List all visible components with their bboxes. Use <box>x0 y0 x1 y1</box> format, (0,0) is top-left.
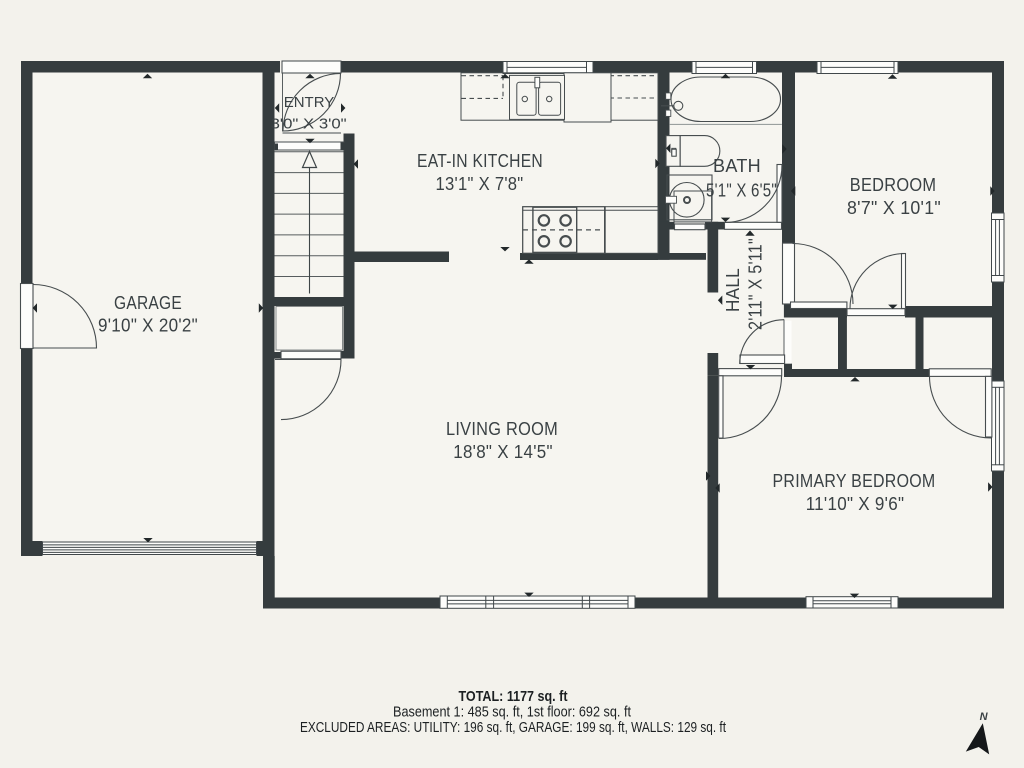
svg-text:GARAGE: GARAGE <box>114 293 182 313</box>
svg-text:EAT-IN KITCHEN: EAT-IN KITCHEN <box>417 151 543 171</box>
svg-text:BEDROOM: BEDROOM <box>850 175 937 195</box>
svg-text:TOTAL: 1177 sq. ft: TOTAL: 1177 sq. ft <box>459 689 568 705</box>
svg-text:Basement 1: 485 sq. ft, 1st fl: Basement 1: 485 sq. ft, 1st floor: 692 s… <box>393 705 631 721</box>
svg-text:8'7" X 10'1": 8'7" X 10'1" <box>847 198 941 218</box>
svg-text:ENTRY: ENTRY <box>284 94 335 111</box>
svg-text:11'10" X 9'6": 11'10" X 9'6" <box>806 494 905 514</box>
svg-text:N: N <box>980 711 989 723</box>
svg-text:EXCLUDED AREAS: UTILITY: 196 s: EXCLUDED AREAS: UTILITY: 196 sq. ft, GAR… <box>300 720 726 736</box>
svg-text:HALL: HALL <box>723 268 743 312</box>
svg-text:LIVING ROOM: LIVING ROOM <box>446 419 558 439</box>
svg-text:PRIMARY BEDROOM: PRIMARY BEDROOM <box>773 471 936 491</box>
svg-text:2'11" X 5'11": 2'11" X 5'11" <box>746 238 766 330</box>
svg-text:5'1" X 6'5": 5'1" X 6'5" <box>706 181 777 201</box>
svg-text:BATH: BATH <box>713 156 761 176</box>
svg-text:3'0" X 3'0": 3'0" X 3'0" <box>271 116 347 133</box>
svg-text:9'10" X 20'2": 9'10" X 20'2" <box>98 316 198 336</box>
svg-text:13'1" X 7'8": 13'1" X 7'8" <box>436 174 524 194</box>
svg-text:18'8" X 14'5": 18'8" X 14'5" <box>453 442 553 462</box>
